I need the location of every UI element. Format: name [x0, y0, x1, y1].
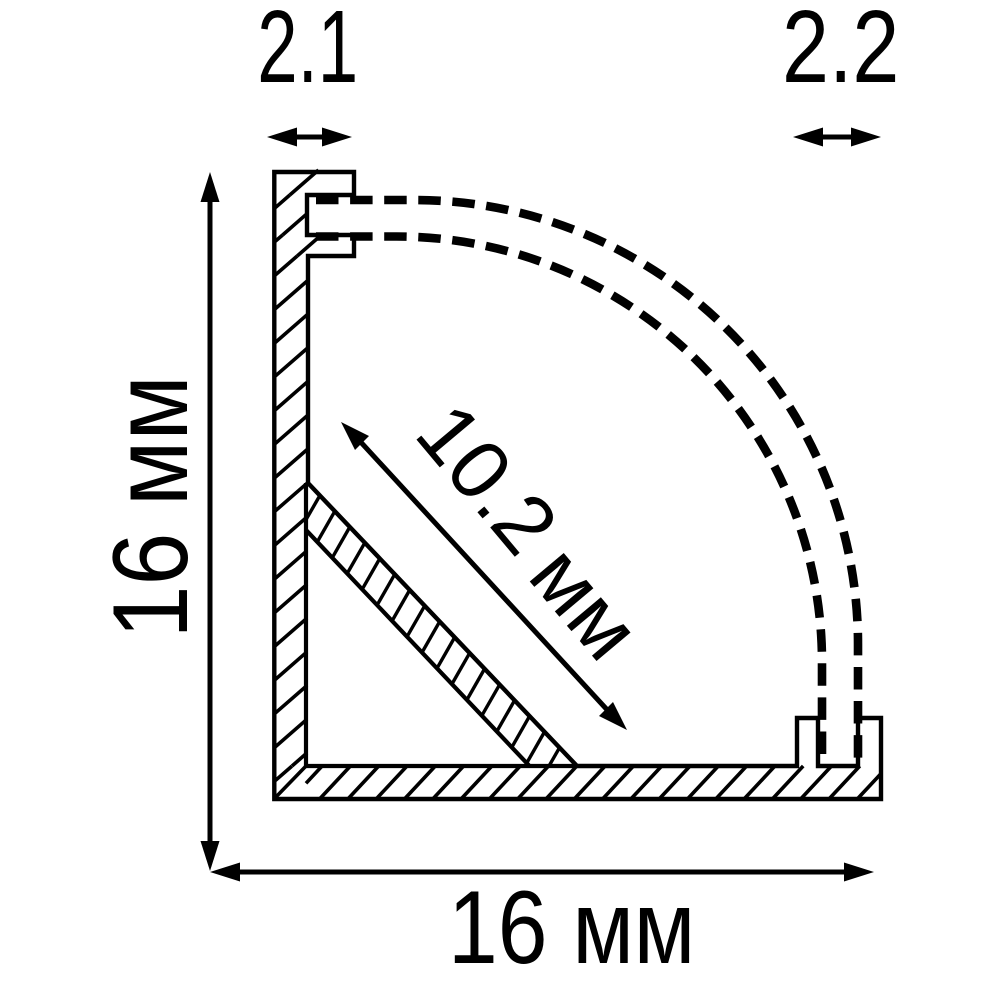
svg-text:2.2: 2.2 [782, 0, 899, 104]
svg-text:16 мм: 16 мм [448, 869, 695, 986]
svg-text:2.1: 2.1 [257, 0, 358, 104]
svg-text:16 мм: 16 мм [91, 375, 210, 638]
